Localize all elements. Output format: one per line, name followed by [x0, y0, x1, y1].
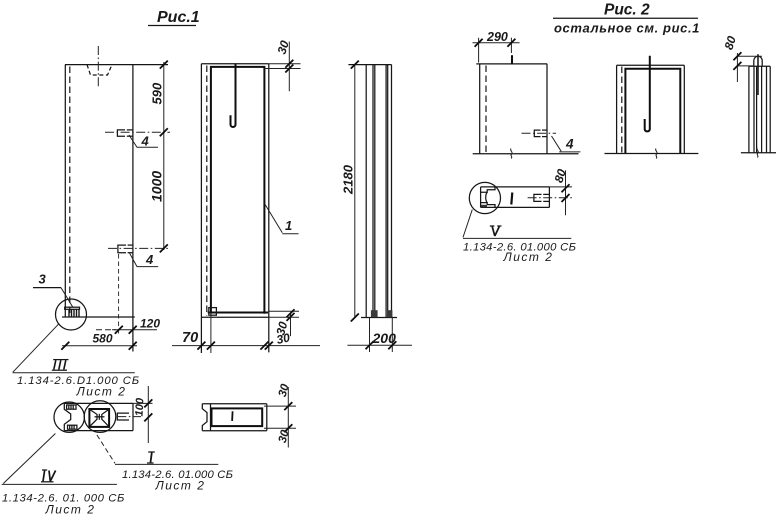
- svg-text:Лист 2: Лист 2: [76, 385, 127, 399]
- svg-text:Лист 2: Лист 2: [503, 250, 554, 264]
- svg-text:70: 70: [182, 330, 198, 346]
- svg-text:100: 100: [134, 397, 147, 417]
- svg-text:4: 4: [145, 252, 154, 267]
- svg-text:Лист 2: Лист 2: [45, 503, 96, 517]
- svg-text:120: 120: [140, 317, 160, 331]
- svg-text:200: 200: [372, 330, 397, 346]
- svg-text:2180: 2180: [341, 164, 356, 195]
- svg-text:Рис.1: Рис.1: [157, 9, 200, 26]
- svg-text:1: 1: [285, 218, 292, 233]
- svg-text:Лист 2: Лист 2: [155, 479, 206, 493]
- svg-text:1000: 1000: [149, 171, 165, 202]
- svg-text:3: 3: [39, 272, 47, 287]
- svg-text:590: 590: [150, 82, 165, 104]
- svg-text:4: 4: [141, 134, 150, 149]
- svg-text:290: 290: [486, 30, 508, 44]
- svg-text:Рис. 2: Рис. 2: [604, 2, 650, 19]
- svg-text:580: 580: [93, 332, 113, 346]
- svg-text:4: 4: [565, 137, 574, 152]
- svg-text:остальное см. рис.1: остальное см. рис.1: [554, 21, 700, 36]
